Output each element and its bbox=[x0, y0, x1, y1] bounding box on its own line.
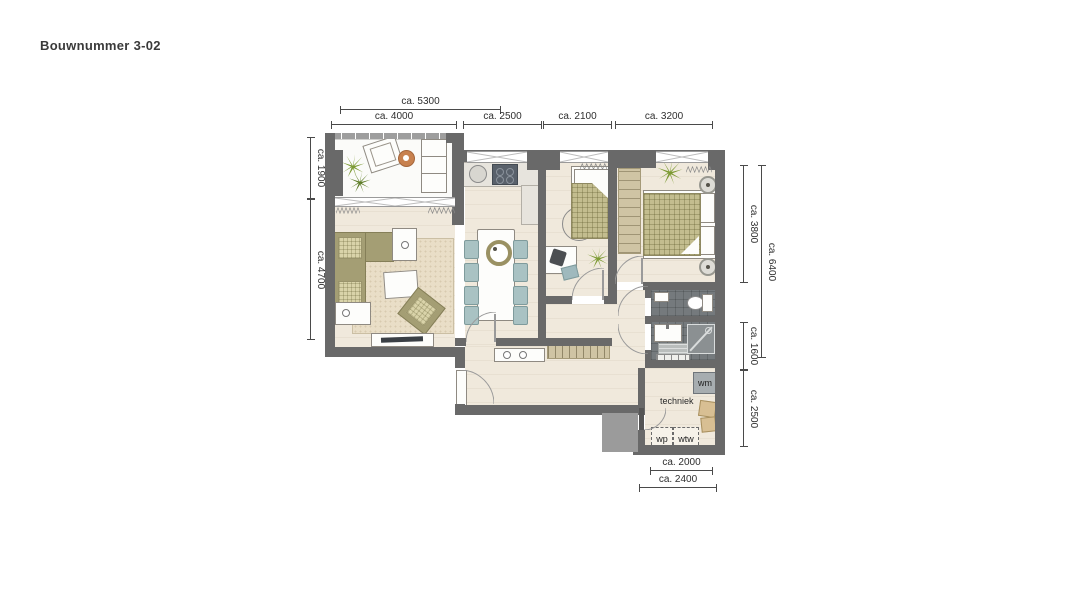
dimension-top-5300: ca. 5300 bbox=[340, 109, 501, 110]
burner bbox=[506, 176, 514, 184]
toilet-cabinet bbox=[654, 292, 669, 302]
floor-plan-sheet: Bouwnummer 3-02 ca. 5300 ca. 4000 ca. 25… bbox=[0, 0, 1092, 614]
tv bbox=[381, 336, 423, 342]
dining-chair bbox=[513, 240, 528, 259]
page-title: Bouwnummer 3-02 bbox=[40, 38, 161, 53]
door-arc bbox=[466, 312, 496, 342]
window-glazing bbox=[656, 151, 708, 163]
dimension-top-2100: ca. 2100 bbox=[543, 124, 612, 125]
blanket-fold bbox=[681, 236, 699, 254]
wall-segment bbox=[604, 296, 617, 304]
balcony-shelf bbox=[421, 139, 447, 193]
washing-machine: wm bbox=[693, 372, 717, 394]
wall-segment bbox=[651, 316, 715, 322]
sofa-side-table bbox=[335, 302, 371, 325]
wall-segment bbox=[496, 338, 612, 346]
table-knob bbox=[401, 241, 409, 249]
wall-segment bbox=[325, 347, 465, 357]
techniek-room-label: techniek bbox=[660, 396, 694, 406]
dimension-label: ca. 2500 bbox=[748, 389, 759, 427]
dimension-top-2500: ca. 2500 bbox=[463, 124, 542, 125]
window-glazing bbox=[467, 151, 527, 163]
burner bbox=[506, 168, 514, 176]
wall-segment bbox=[645, 360, 725, 368]
tv-console bbox=[371, 333, 434, 347]
window-glazing bbox=[560, 151, 608, 163]
dimension-top-3200: ca. 3200 bbox=[615, 124, 713, 125]
side-table-round bbox=[398, 150, 415, 167]
dining-chair bbox=[513, 286, 528, 305]
ventilation-label: wtw bbox=[678, 434, 694, 444]
wall-segment bbox=[633, 445, 725, 455]
dimension-right-1600: ca. 1600 bbox=[743, 322, 744, 370]
front-door-arc bbox=[460, 370, 494, 404]
corridor-floor bbox=[546, 304, 617, 338]
burner bbox=[496, 176, 504, 184]
wall-segment bbox=[455, 338, 466, 346]
dimension-right-2500: ca. 2500 bbox=[743, 370, 744, 447]
shelf-divider bbox=[422, 173, 446, 174]
dimension-left-1900: ca. 1900 bbox=[310, 137, 311, 199]
radiator-symbol bbox=[336, 207, 360, 214]
shelf-divider bbox=[422, 156, 446, 157]
washing-machine-label: wm bbox=[698, 378, 712, 388]
dimension-label: ca. 5300 bbox=[401, 96, 439, 107]
washbasin bbox=[654, 324, 682, 342]
cooktop bbox=[492, 164, 518, 185]
toilet-tank bbox=[702, 294, 713, 312]
dimension-label: ca. 1600 bbox=[748, 327, 759, 365]
dimension-right-3800: ca. 3800 bbox=[743, 165, 744, 283]
wall-segment bbox=[538, 162, 546, 346]
dimension-label: ca. 3200 bbox=[645, 111, 683, 122]
table-knob bbox=[342, 309, 350, 317]
decor-item bbox=[503, 351, 511, 359]
dimension-left-4700: ca. 4700 bbox=[310, 199, 311, 340]
dining-chair bbox=[464, 286, 479, 305]
dimension-label: ca. 2500 bbox=[483, 111, 521, 122]
shower bbox=[687, 324, 715, 354]
bowl-center bbox=[493, 247, 497, 251]
decor-item bbox=[519, 351, 527, 359]
bed-pillow bbox=[574, 169, 609, 184]
techniek-door-leaf bbox=[639, 408, 644, 430]
exterior-structure bbox=[602, 413, 638, 452]
plant-icon bbox=[586, 246, 610, 270]
side-table-center bbox=[403, 155, 409, 161]
balcony-railing bbox=[327, 133, 456, 139]
dining-chair bbox=[513, 263, 528, 282]
toilet-door-arc bbox=[618, 286, 648, 316]
wall-segment bbox=[455, 347, 465, 368]
dimension-label: ca. 2100 bbox=[558, 111, 596, 122]
sofa-cushion bbox=[338, 237, 362, 259]
dining-chair bbox=[513, 306, 528, 325]
radiator-symbol bbox=[580, 163, 607, 170]
door-leaf bbox=[641, 258, 643, 284]
bathroom-door-arc bbox=[618, 324, 648, 354]
armchair-cushion bbox=[406, 295, 438, 326]
dimension-label: ca. 6400 bbox=[766, 242, 777, 280]
door-leaf bbox=[602, 270, 604, 300]
dimension-label: ca. 4000 bbox=[375, 111, 413, 122]
lounge-chair-cushion bbox=[370, 142, 397, 167]
faucet bbox=[666, 323, 669, 329]
hall-sideboard bbox=[494, 348, 545, 362]
wall-segment bbox=[715, 150, 725, 455]
lamp-center bbox=[706, 265, 710, 269]
table-bowl bbox=[486, 240, 512, 266]
dimension-label: ca. 2400 bbox=[659, 474, 697, 485]
bed-pillow bbox=[699, 226, 715, 255]
dining-chair bbox=[464, 263, 479, 282]
wall-segment bbox=[538, 296, 572, 304]
burner bbox=[496, 168, 504, 176]
dining-chair bbox=[464, 240, 479, 259]
sofa-side-table bbox=[392, 228, 417, 261]
dimension-top-4000: ca. 4000 bbox=[331, 124, 457, 125]
door-arc bbox=[572, 268, 604, 300]
radiator-symbol bbox=[686, 166, 712, 173]
heat-pump-label: wp bbox=[656, 434, 668, 444]
dimension-label: ca. 2000 bbox=[662, 457, 700, 468]
door-leaf bbox=[494, 314, 496, 342]
dimension-label: ca. 3800 bbox=[748, 205, 759, 243]
kitchen-sink bbox=[469, 165, 487, 183]
wall-segment bbox=[638, 368, 645, 408]
lamp-center bbox=[706, 183, 710, 187]
bed-pillow bbox=[699, 193, 715, 223]
door-arc bbox=[615, 256, 643, 284]
plant-icon bbox=[348, 170, 372, 194]
dimension-bottom-2000: ca. 2000 bbox=[650, 470, 713, 471]
shower-drain bbox=[705, 327, 712, 334]
window-glazing bbox=[335, 197, 455, 207]
dimension-bottom-2400: ca. 2400 bbox=[639, 487, 717, 488]
techniek-door-arc bbox=[644, 408, 666, 430]
dimension-right-6400: ca. 6400 bbox=[761, 165, 762, 358]
radiator-symbol bbox=[428, 207, 455, 214]
wardrobe bbox=[618, 168, 641, 254]
wall-pier bbox=[327, 150, 343, 196]
wall-segment bbox=[643, 282, 725, 290]
